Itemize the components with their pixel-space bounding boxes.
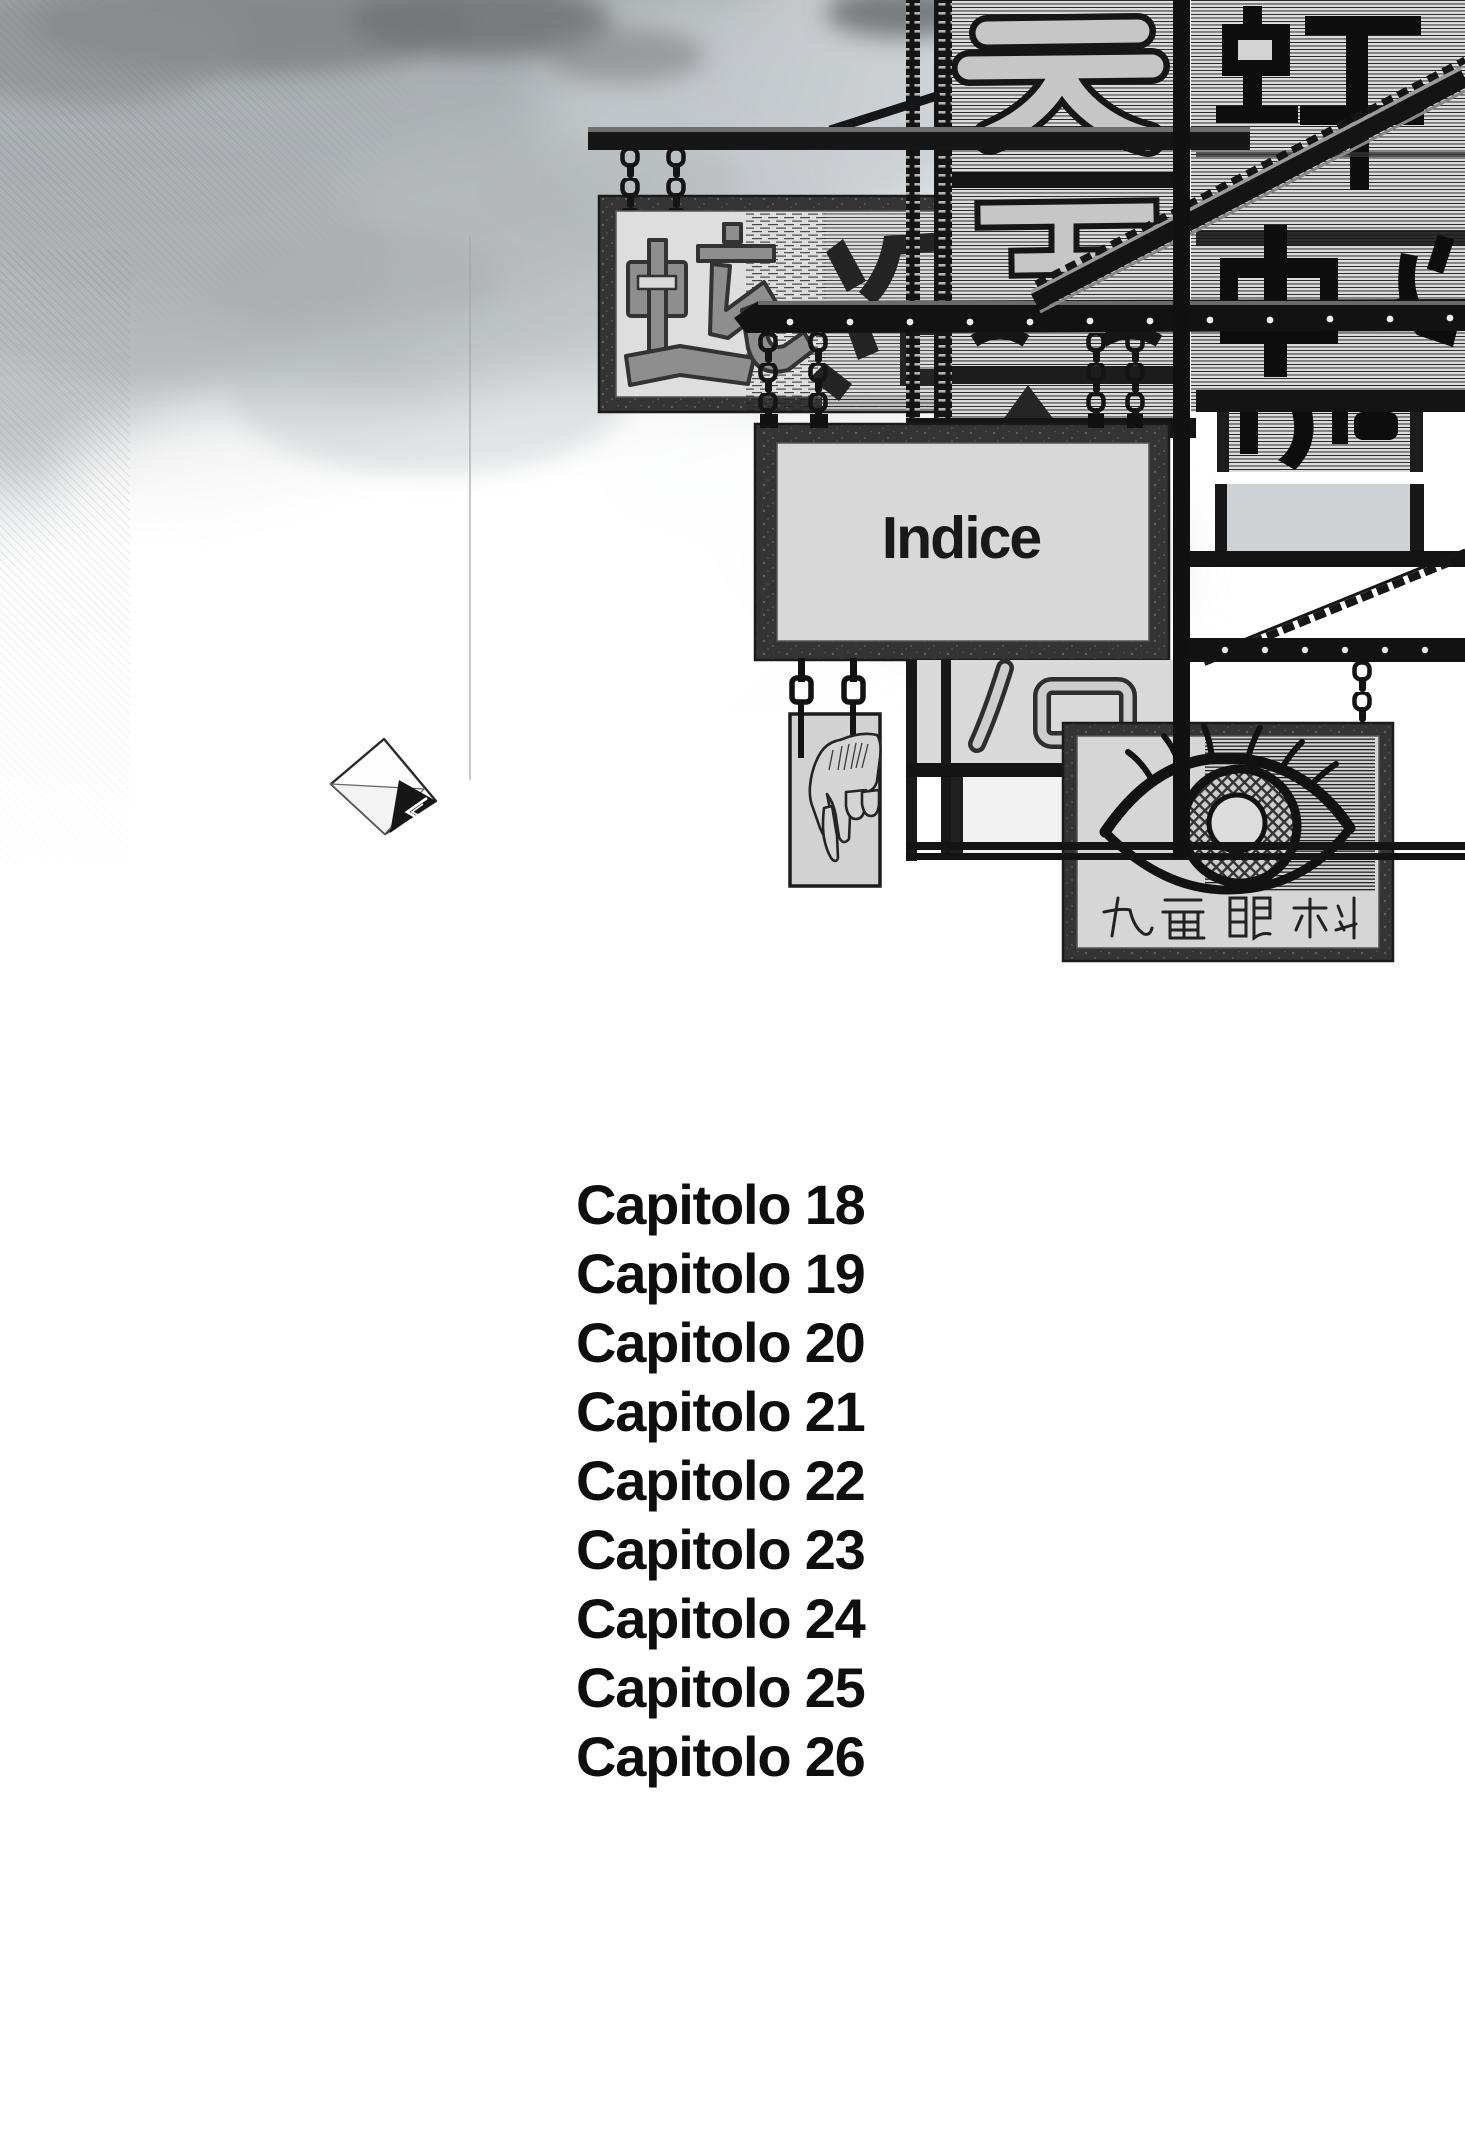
svg-text:Indice: Indice [882, 505, 1041, 571]
svg-text:Capitolo 26: Capitolo 26 [576, 1725, 865, 1788]
svg-text:Capitolo 23: Capitolo 23 [576, 1518, 865, 1581]
svg-text:Capitolo 22: Capitolo 22 [576, 1449, 865, 1512]
svg-text:Capitolo 21: Capitolo 21 [576, 1380, 865, 1443]
svg-text:Capitolo 18: Capitolo 18 [576, 1173, 865, 1236]
svg-text:Capitolo 19: Capitolo 19 [576, 1242, 865, 1305]
svg-text:Capitolo 25: Capitolo 25 [576, 1656, 865, 1719]
svg-text:Capitolo 24: Capitolo 24 [576, 1587, 866, 1650]
svg-text:Capitolo 20: Capitolo 20 [576, 1311, 865, 1374]
